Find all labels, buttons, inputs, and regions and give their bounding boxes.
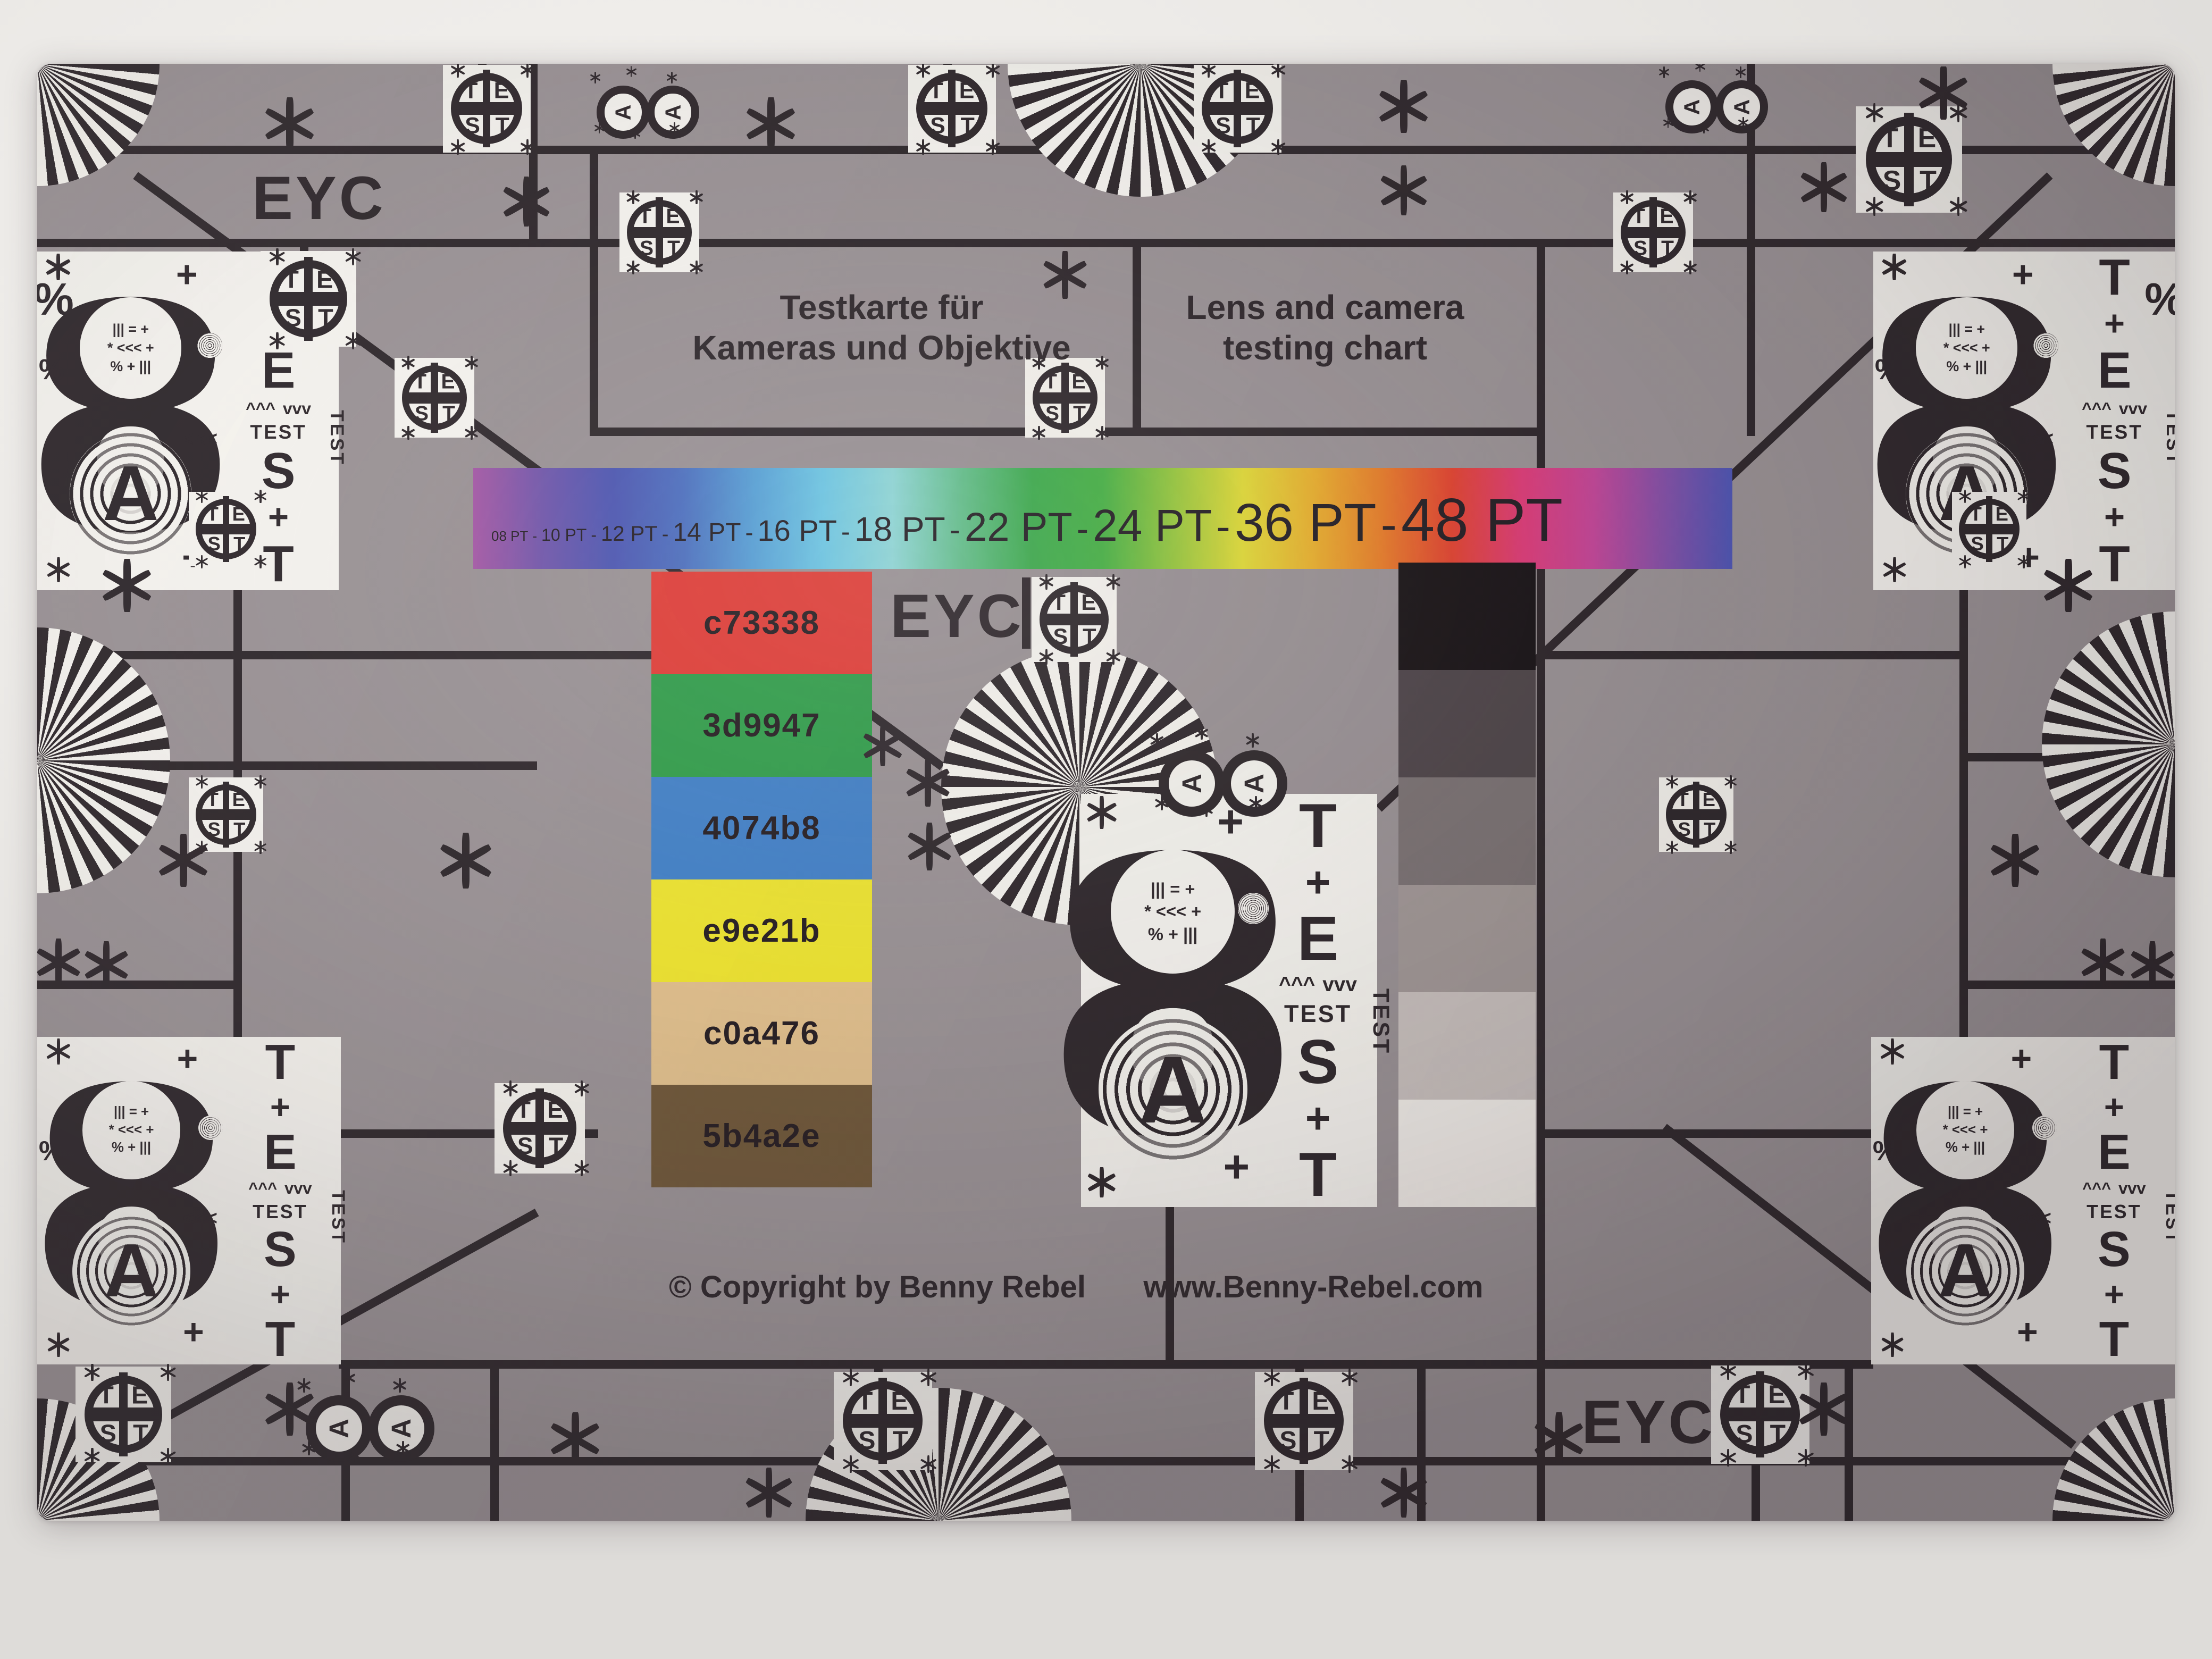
asterisk-icon [1724,775,1737,789]
test-circle-letter: T [233,820,245,839]
asterisk-icon [550,1412,601,1465]
test-circle-letter: S [1045,404,1059,424]
font-size-labels: 08 PT-10 PT-12 PT-14 PT-16 PT-18 PT-22 P… [491,485,1722,555]
website-label: www.Benny-Rebel.com [1074,1272,1553,1303]
percent-mark: % [1083,918,1114,958]
title-english-line2: testing chart [1086,328,1564,368]
test-circle-letter: T [1970,505,1982,524]
test-circle-letter: T [549,1135,563,1158]
letter-a-target: A [1731,99,1753,114]
asterisk-icon [345,248,361,265]
asterisk-icon [196,555,208,568]
test-circle-icon: TEST [76,1367,171,1462]
font-size-label: 12 PT [601,522,658,546]
asterisk-icon [1695,64,1705,72]
column-letter-t: T [2099,255,2130,300]
eyc-label-top-left: EYC [234,168,404,229]
font-size-label: 10 PT [541,525,586,545]
asterisk-icon [916,139,931,155]
asterisk-icon [1155,796,1169,810]
test-circle-letter: T [1073,404,1086,424]
test-circle-letter: T [1997,534,2008,554]
asterisk-icon [1621,190,1635,205]
asterisk-icon [402,356,416,370]
rotated-eight-loop: A [306,1395,372,1462]
color-swatch: c73338 [651,572,872,674]
test-circle-letter: E [131,1383,148,1408]
arrows-left: <<< [182,428,217,451]
asterisk-icon [1800,162,1848,213]
test-circle-letter: T [442,404,455,424]
fine-pattern-line: * <<< + [1144,900,1201,923]
column-letter-e: E [2098,348,2132,393]
test-circle-icon: TEST [495,1083,585,1174]
photo-background: { "page_background": "#e9e7e4", "chart":… [0,0,2212,1659]
font-size-separator: - [841,516,850,547]
column-letter-e: E [1297,911,1339,967]
test-word: TEST [2086,423,2142,441]
title-english: Lens and camera testing chart [1086,287,1564,368]
test-circle-letter: E [1703,790,1715,809]
arrow-row: ^^^vvv [2082,401,2147,416]
asterisk-icon [265,97,315,150]
arrows-up: ^^^ [248,1181,277,1196]
concentric-rings-icon: A [1906,1212,2024,1330]
test-circle-icon: TEST [1025,358,1105,438]
column-letter-t: T [265,1317,295,1361]
asterisk-icon [1683,261,1697,275]
test-circle-letter: S [1279,1428,1296,1453]
grid-line-horizontal [339,1360,1873,1369]
test-circle-letter: T [496,115,509,138]
test-circle-letter: E [547,1099,563,1122]
test-circle-letter: T [1214,80,1228,103]
asterisk-icon [1865,103,1883,122]
column-letter-s: S [2098,1227,2131,1271]
font-size-label: 22 PT [965,504,1073,550]
test-circle-letter: S [930,115,945,138]
concentric-rings-icon [2033,333,2059,358]
swatch-hex-label: c0a476 [703,1015,820,1052]
asterisk-icon [1797,1362,1814,1380]
plus-mark: + [2012,253,2034,296]
test-circle-icon: TEST [1194,65,1281,153]
asterisk-icon [1738,117,1748,128]
font-size-label: 08 PT [491,528,528,544]
test-circle-letter: S [415,404,429,424]
fine-pattern-line: ||| = + [1948,320,1985,339]
fine-pattern-line: % + ||| [1946,1139,1985,1157]
column-letter-t: T [2099,1317,2129,1361]
asterisk-icon [1663,117,1673,128]
column-letter-t: T [265,1040,295,1084]
concentric-rings-icon [2032,1116,2057,1140]
asterisk-icon [84,1364,100,1381]
plus-mark: + [2104,1092,2124,1122]
asterisk-icon [1724,841,1737,854]
asterisk-icon [690,190,703,205]
font-size-separator: - [591,525,597,545]
asterisk-icon [1271,64,1286,78]
test-circle-letter: T [1246,115,1260,138]
asterisk-icon [863,725,903,767]
plus-mark: + [176,253,198,296]
asterisk-icon [1271,139,1286,155]
asterisk-icon [1949,197,1967,216]
test-circle-letter: T [1083,625,1096,648]
percent-mark: % [39,353,64,386]
title-german: Testkarte für Kameras und Objektive [642,287,1121,368]
grid-line-horizontal [1545,1129,1901,1138]
grayscale-step [1398,777,1536,885]
asterisk-icon [439,833,492,889]
test-word: TEST [2087,1203,2141,1220]
column-letter-t: T [2099,541,2130,587]
asterisk-icon [906,759,951,806]
asterisk-icon [254,841,267,854]
asterisk-icon [465,356,479,370]
title-english-line1: Lens and camera [1086,287,1564,328]
fine-pattern-line: % + ||| [112,1139,151,1157]
fine-pattern-line: * <<< + [109,1121,154,1139]
test-circle-letter: T [98,1383,114,1408]
fine-pattern-line: * <<< + [107,339,154,357]
test-word: TEST [253,1203,307,1220]
test-circle-letter: S [207,820,220,839]
siemens-fan-top-right [2052,64,2175,186]
asterisk-icon [985,64,1000,78]
test-circle-letter: S [1736,1421,1753,1447]
eight-top-detail-disc: ||| = +* <<< +% + ||| [80,297,181,399]
letter-a-target: A [325,1419,353,1438]
letter-a-target: A [1241,774,1268,793]
test-circle-letter: E [1081,591,1096,614]
asterisk-icon [84,941,129,988]
test-circle-letter: S [1053,625,1068,648]
asterisk-icon [667,72,677,83]
asterisk-icon [2017,490,2030,503]
asterisk-icon [1882,557,1906,582]
test-circle-icon: TEST [395,358,474,438]
test-circle-horizontal-bar [1873,152,1945,167]
arrows-down: vvv [283,401,311,416]
grayscale-step [1398,670,1536,777]
arrows-down: vvv [284,1181,312,1196]
asterisk-icon [1201,139,1216,155]
plus-mark: + [270,1279,290,1310]
asterisk-icon [160,1448,176,1465]
arrows-up: ^^^ [1279,976,1315,994]
asterisk-icon [450,64,465,78]
asterisk-icon [502,1160,518,1176]
asterisk-icon [84,1448,100,1465]
color-swatch: e9e21b [651,879,872,982]
plus-mark: + [1223,1141,1250,1193]
asterisk-icon [630,128,640,139]
asterisk-icon [1150,733,1164,748]
test-circle-letter: T [1920,167,1937,195]
plus-mark: + [268,501,289,533]
eight-test-block: 8||| = +* <<< +% + |||AT+E^^^vvvTESTS+TT… [1871,1037,2175,1364]
eight-test-block: 8||| = +* <<< +% + |||AT+E^^^vvvTESTS+TT… [1081,794,1377,1207]
test-circle-letter: E [1996,505,2008,524]
test-circle-icon: TEST [1613,192,1693,272]
eyc-label-center: EYC [872,586,1042,647]
test-circle-letter: E [666,206,680,227]
asterisk-icon [1865,197,1883,216]
column-letter-t: T [2099,1040,2129,1084]
letter-a-target: A [388,1419,415,1438]
test-circle-icon: TEST [908,65,996,153]
asterisk-icon [102,559,153,612]
test-circle-letter: E [1071,372,1085,392]
asterisk-icon [1379,80,1429,133]
test-circle-letter: T [1278,1388,1294,1414]
arrows-up: ^^^ [246,401,275,416]
test-circle-letter: S [1216,115,1231,138]
font-size-label: 14 PT [673,518,741,547]
test-circle-icon: TEST [1255,1372,1353,1470]
test-circle-letter: S [465,115,480,138]
plus-mark: + [2104,308,2125,340]
test-circle-letter: T [667,238,680,259]
font-size-separator: - [1077,508,1088,549]
asterisk-icon [347,1447,361,1462]
asterisk-icon [1039,649,1053,665]
swatch-hex-label: 3d9947 [702,707,820,744]
letter-a-target: A [1142,1058,1204,1120]
siemens-fan-bottom-right [2052,1398,2175,1521]
test-circle-horizontal-bar [1038,392,1092,404]
plus-mark: + [270,1092,290,1122]
test-circle-letter: E [441,372,455,392]
percent-mark: % [1875,353,1900,386]
rotated-eight-icon: AA [1662,64,1789,150]
letter-a-target: A [1681,99,1703,114]
asterisk-icon [269,248,286,265]
asterisk-icon [1107,574,1121,590]
arrows-left: <<< [183,1207,217,1229]
test-circle-letter: S [640,238,653,259]
grayscale-step [1398,885,1536,992]
test-circle-letter: T [464,80,477,103]
test-circle-letter: E [1918,124,1937,152]
asterisk-icon [1087,1167,1116,1197]
eight-top-detail-disc: ||| = +* <<< +% + ||| [1916,1081,2015,1179]
percent-mark: % [1873,1135,1898,1167]
test-circle-letter: S [100,1421,116,1446]
vertical-test-word: TEST [1368,988,1394,1055]
asterisk-icon [1246,733,1260,748]
test-word: TEST [1284,1003,1352,1025]
grayscale-step [1398,563,1536,670]
asterisk-icon [1918,66,1969,120]
eight-test-block: 8||| = +* <<< +% + |||AT+E^^^vvvTESTS+TT… [37,1037,341,1364]
fine-pattern-line: ||| = + [112,320,149,339]
asterisk-icon [1263,1369,1280,1386]
asterisk-icon [1880,1038,1905,1065]
test-circle-letter: E [959,80,975,103]
asterisk-icon [1666,775,1679,789]
font-size-label: 48 PT [1401,485,1563,555]
concentric-rings-icon [198,1116,223,1140]
asterisk-icon [2130,941,2175,988]
plus-mark: + [2017,1312,2038,1353]
test-circle-horizontal-bar [632,227,686,238]
test-circle-letter: T [1677,790,1689,809]
rotated-eight-icon: AA [1154,730,1313,838]
asterisk-icon [465,426,479,440]
column-letter-e: E [2098,1130,2131,1174]
test-circle-icon: TEST [189,492,263,566]
asterisk-icon [1341,1369,1358,1386]
test-circle-icon: TEST [619,192,699,272]
fine-pattern-line: % + ||| [110,357,151,376]
asterisk-icon [1881,1333,1904,1356]
percent-mark: % [2144,274,2175,326]
asterisk-icon [594,122,605,133]
asterisk-icon [1086,796,1117,828]
color-swatch: 3d9947 [651,674,872,777]
asterisk-icon [402,426,416,440]
test-circle-horizontal-bar [1626,227,1680,238]
asterisk-icon [1797,1449,1814,1467]
test-circle-icon: TEST [1856,106,1962,213]
column-letter-t: T [263,541,294,587]
asterisk-icon [196,490,208,503]
asterisk-icon [254,775,267,789]
test-circle-letter: T [1314,1428,1329,1453]
test-word: TEST [250,423,306,441]
asterisk-icon [1799,1382,1849,1436]
test-circle-icon: TEST [1032,577,1117,662]
test-circle-letter: T [207,505,219,524]
asterisk-icon [1959,555,1972,568]
asterisk-icon [1380,1468,1428,1518]
grid-line-horizontal [37,651,651,659]
grid-line-vertical [1537,247,1545,1521]
test-letter-column: T+E^^^vvvTESTS+T [1259,798,1377,1203]
asterisk-icon [342,1371,356,1385]
asterisk-icon [916,64,931,78]
test-circle-letter: T [318,306,333,331]
asterisk-icon [46,1038,71,1065]
arrow-row: ^^^vvv [1279,976,1357,994]
asterisk-icon [1200,802,1213,817]
asterisk-icon [842,1455,859,1473]
font-size-separator: - [662,523,669,546]
asterisk-icon [627,261,641,275]
test-circle-letter: S [1883,167,1901,195]
column-letter-s: S [2098,448,2132,494]
test-circle-letter: E [1660,206,1673,227]
font-size-label: 18 PT [854,509,945,549]
plus-mark: + [2104,1279,2124,1310]
test-letter-column: T+E^^^vvvTESTS+T [220,1040,341,1361]
test-circle-letter: T [1052,591,1065,614]
asterisk-icon [1683,190,1697,205]
asterisk-icon [254,490,267,503]
test-circle-letter: T [929,80,943,103]
test-circle-letter: E [232,790,245,809]
asterisk-icon [1736,66,1746,78]
lens-test-chart: 08 PT-10 PT-12 PT-14 PT-16 PT-18 PT-22 P… [37,64,2175,1521]
asterisk-icon [1195,726,1209,740]
test-circle-letter: T [233,534,245,554]
grid-line-horizontal [37,239,2175,247]
title-german-line2: Kameras und Objektive [642,328,1121,368]
column-letter-s: S [262,448,296,494]
plus-mark: + [1305,1099,1331,1138]
grid-line-vertical [590,154,598,436]
swatch-hex-label: 4074b8 [702,809,820,847]
test-circle-letter: E [1768,1382,1785,1407]
asterisk-icon [396,1441,410,1455]
asterisk-icon [1959,490,1972,503]
asterisk-icon [1380,165,1428,216]
test-circle-icon: TEST [1952,492,2026,566]
test-circle-letter: E [1312,1388,1329,1414]
test-circle-letter: T [207,790,219,809]
vertical-test-word: TEST [328,1191,348,1245]
asterisk-icon [1882,254,1907,280]
test-circle-letter: E [1245,80,1260,103]
plus-mark: + [183,1312,204,1353]
letter-a-target: A [613,104,634,120]
eight-top-detail-disc: ||| = +* <<< +% + ||| [1111,850,1235,974]
asterisk-icon [1033,426,1046,440]
eyc-label-bottom-right: EYC [1563,1392,1733,1453]
asterisk-icon [1095,426,1109,440]
test-circle-letter: T [414,372,426,392]
font-size-label: 16 PT [758,513,837,548]
asterisk-icon [626,66,636,77]
asterisk-icon [37,939,81,986]
vertical-test-word: TEST [2161,1191,2175,1245]
test-circle-letter: T [893,1428,908,1453]
test-circle-letter: T [857,1388,873,1414]
test-circle-letter: E [232,505,245,524]
test-circle-letter: T [1044,372,1057,392]
test-letter-column: T+E^^^vvvTESTS+T [2054,1040,2175,1361]
fine-pattern-line: * <<< + [1943,339,1990,357]
test-circle-icon: TEST [443,65,531,153]
font-size-separator: - [745,519,753,547]
fine-pattern-line: ||| = + [114,1103,149,1121]
asterisk-icon [1249,796,1263,810]
asterisk-icon [985,139,1000,155]
fine-pattern-line: % + ||| [1148,923,1198,945]
asterisk-icon [2017,555,2030,568]
test-circle-letter: T [516,1099,531,1122]
column-letter-e: E [262,348,296,393]
asterisk-icon [1666,841,1679,854]
arrow-row: ^^^vvv [2082,1181,2146,1196]
asterisk-icon [2081,939,2126,986]
plus-mark: + [2104,501,2125,533]
plus-mark: + [177,1038,198,1079]
arrows-down: vvv [2119,401,2147,416]
asterisk-icon [450,139,465,155]
asterisk-icon [669,122,680,133]
title-german-line1: Testkarte für [642,287,1121,328]
test-circle-letter: T [961,115,975,138]
fine-pattern-line: ||| = + [1151,878,1195,900]
eight-top-detail-disc: ||| = +* <<< +% + ||| [82,1081,181,1179]
test-circle-letter: S [517,1135,533,1158]
eight-top-detail-disc: ||| = +* <<< +% + ||| [1916,297,2017,399]
asterisk-icon [1621,261,1635,275]
